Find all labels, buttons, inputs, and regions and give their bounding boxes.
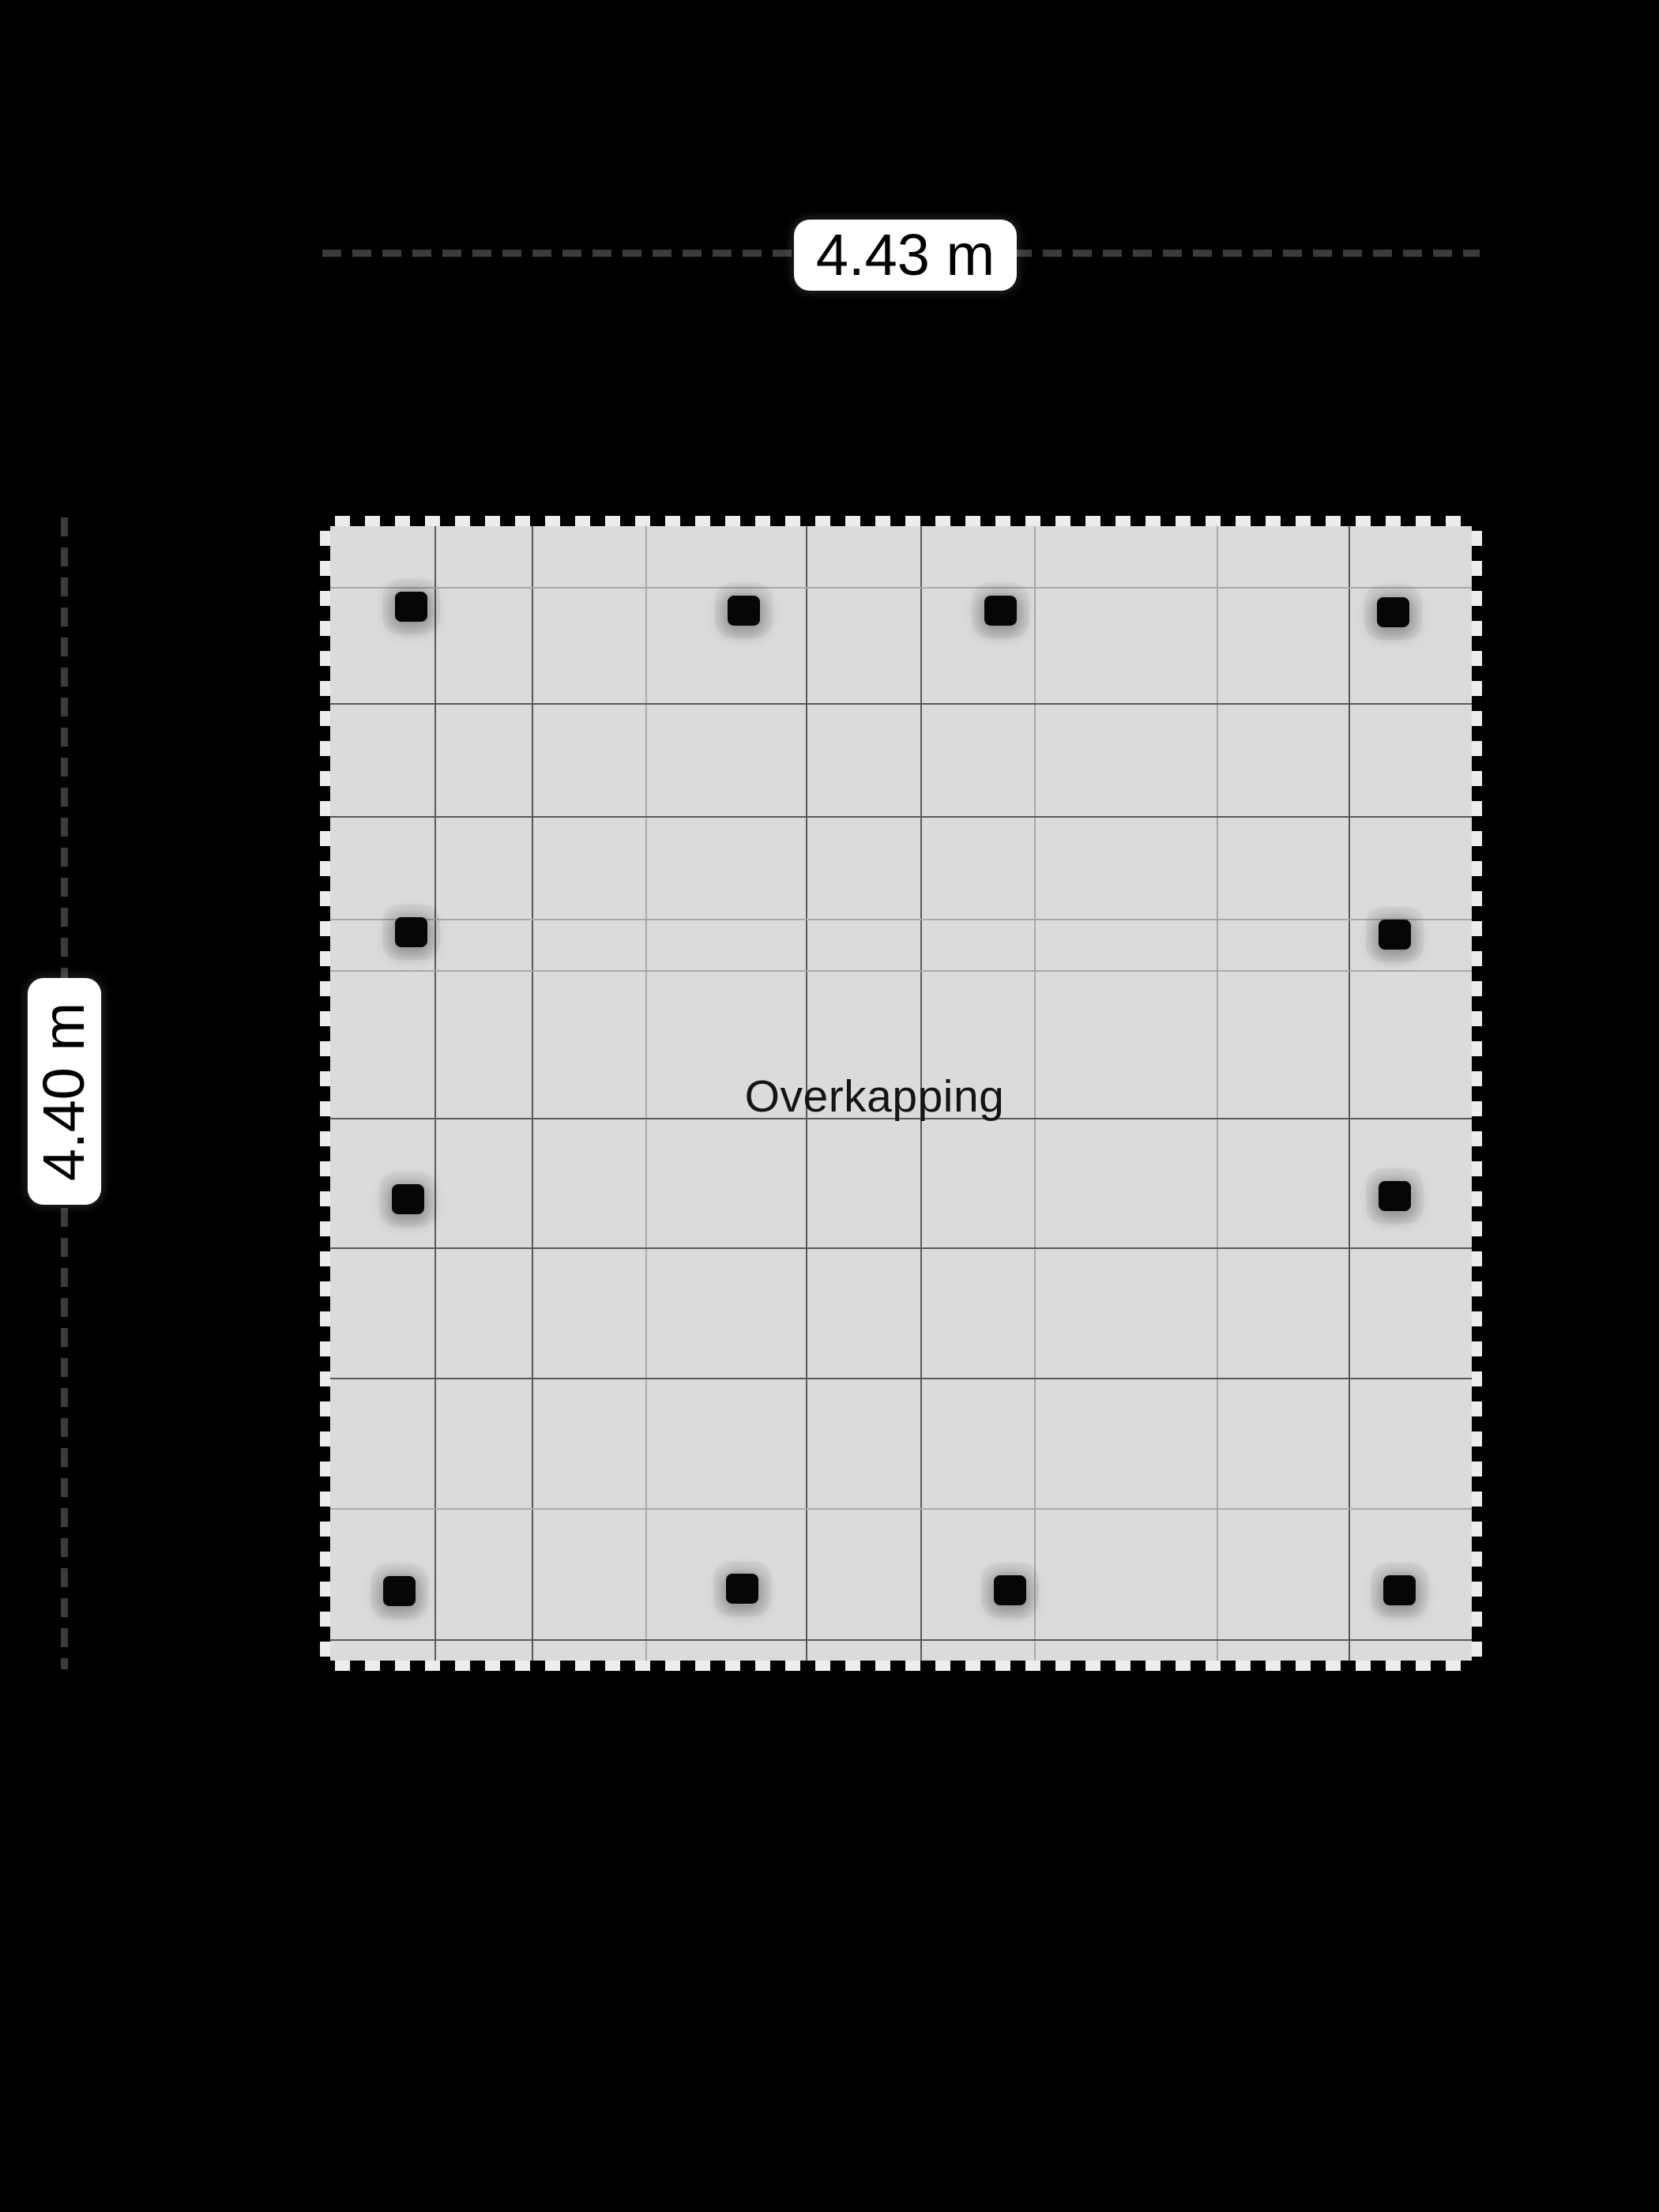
post — [984, 596, 1017, 626]
grid-line-horizontal — [322, 1508, 1480, 1510]
post — [1379, 1181, 1411, 1211]
canvas: { "title": "Overkapping", "dimensions": … — [0, 0, 1659, 2212]
dimension-width-value: 4.43 m — [816, 226, 995, 284]
grid-line-vertical — [1349, 517, 1350, 1669]
roof-area: Overkapping — [322, 517, 1480, 1669]
grid-line-horizontal — [322, 1378, 1480, 1379]
grid-line-vertical — [532, 517, 533, 1669]
grid-line-horizontal — [322, 970, 1480, 972]
post — [994, 1575, 1026, 1605]
grid-line-horizontal — [322, 587, 1480, 589]
post — [395, 592, 427, 622]
post — [392, 1184, 424, 1214]
dimension-height-value: 4.40 m — [36, 1002, 94, 1180]
grid-line-vertical — [645, 517, 647, 1669]
dimension-label-width: 4.43 m — [794, 220, 1017, 291]
post — [1383, 1575, 1416, 1605]
room-label: Overkapping — [745, 1070, 1005, 1123]
grid-line-horizontal — [322, 1247, 1480, 1249]
grid-line-horizontal — [322, 1639, 1480, 1641]
grid-line-horizontal — [322, 703, 1480, 705]
roof-border-top — [320, 516, 1482, 526]
roof-border-right — [1472, 516, 1482, 1671]
post — [383, 1576, 416, 1606]
roof-border-bottom — [320, 1661, 1482, 1671]
grid-line-vertical — [1217, 517, 1218, 1669]
grid-line-vertical — [434, 517, 436, 1669]
roof-border-left — [320, 516, 330, 1671]
post — [1379, 920, 1411, 950]
dimension-label-height: 4.40 m — [28, 978, 101, 1205]
grid-line-horizontal — [322, 919, 1480, 920]
post — [1377, 597, 1409, 627]
post — [728, 596, 760, 626]
grid-line-horizontal — [322, 816, 1480, 818]
post — [395, 917, 427, 947]
grid-line-vertical — [1034, 517, 1036, 1669]
post — [726, 1574, 758, 1604]
